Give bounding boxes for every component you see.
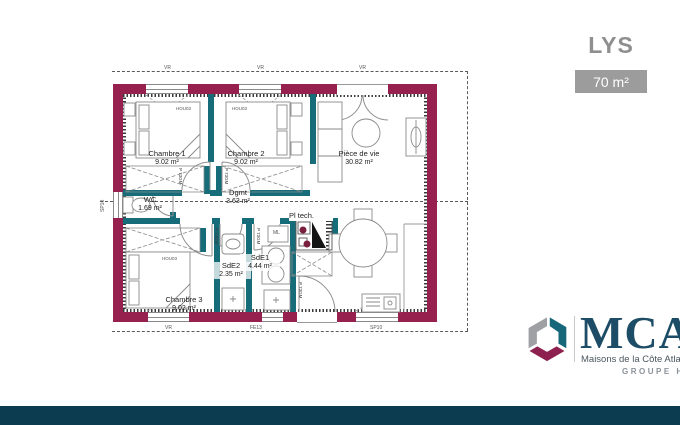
mca-cube-icon	[524, 314, 570, 365]
surface-value: 70 m²	[593, 74, 629, 90]
room-area: 9.02 m²	[148, 305, 220, 314]
room-name: WC	[128, 196, 172, 205]
room-label-piece-de-vie: Pièce de vie 30.82 m²	[320, 150, 398, 167]
page: Chambre 1 9.02 m² Chambre 2 9.02 m² Pièc…	[0, 0, 680, 425]
pendant-circle	[352, 119, 380, 147]
room-label-dgmt: Dgmt 3.63 m²	[216, 189, 260, 206]
room-name: Chambre 2	[210, 150, 282, 159]
floor-plan: Chambre 1 9.02 m² Chambre 2 9.02 m² Pièc…	[0, 0, 500, 425]
dim-mark-bottom-1: VR	[163, 326, 174, 331]
room-area: 30.82 m²	[320, 159, 398, 168]
door-jamb-label-3: P 73GM	[214, 228, 219, 244]
room-label-chambre1: Chambre 1 9.02 m²	[130, 150, 204, 167]
door-jamb-label-1: P 73GM	[178, 168, 183, 184]
footer-bar	[0, 406, 680, 425]
logo-group-label: GROUPE HEXAOM	[622, 367, 680, 376]
furniture-layer	[0, 0, 500, 425]
logo-subtitle: Maisons de la Côte Atlantique	[581, 354, 680, 365]
room-label-wc: WC 1.69 m²	[128, 196, 172, 213]
room-area: 2.35 m²	[211, 271, 251, 280]
room-name: Dgmt	[216, 189, 260, 198]
door-jamb-label-2: P 73GM	[224, 168, 229, 184]
room-area: 1.69 m²	[128, 205, 172, 214]
room-name: Chambre 3	[148, 296, 220, 305]
room-name: Pièce de vie	[320, 150, 398, 159]
room-label-chambre2: Chambre 2 9.02 m²	[210, 150, 282, 167]
room-area: 9.02 m²	[130, 159, 204, 168]
washing-machine-label: ML	[273, 231, 280, 236]
kitchen-counter	[404, 224, 427, 312]
room-area: 9.02 m²	[210, 159, 282, 168]
room-name: Chambre 1	[130, 150, 204, 159]
room-label-chambre3: Chambre 3 9.02 m²	[148, 296, 220, 313]
dining-table	[329, 209, 397, 277]
room-name: SdE1	[240, 254, 280, 263]
brand-logo: MCA Maisons de la Côte Atlantique GROUPE…	[524, 310, 680, 380]
dim-mark-left: SP10	[101, 200, 106, 212]
bed-ref-ch1: HOU03	[176, 106, 191, 111]
dim-mark-bottom-2: FE13	[248, 326, 264, 331]
door-jamb-label-4: P 73GM	[256, 228, 261, 244]
room-label-pltech: Pl tech.	[289, 212, 333, 221]
dim-mark-bottom-3: SP10	[368, 326, 384, 331]
kitchen-sink	[362, 294, 400, 312]
sofa	[318, 102, 342, 182]
dim-mark-top-1: VR	[162, 66, 173, 71]
door-jamb-label-5: P 73GM	[298, 282, 303, 298]
dim-mark-top-3: VR	[357, 66, 368, 71]
logo-acronym: MCA	[580, 312, 680, 354]
room-name: Pl tech.	[289, 212, 333, 221]
room-area: 4.44 m²	[240, 263, 280, 272]
room-label-sde1: SdE1 4.44 m²	[240, 254, 280, 271]
pltech-equipment	[296, 218, 332, 250]
model-name: LYS	[575, 32, 647, 59]
logo-divider	[574, 316, 575, 362]
bed-ref-ch3: HOU03	[162, 256, 177, 261]
surface-badge: 70 m²	[575, 70, 647, 93]
bed-ref-ch2: HOU03	[232, 106, 247, 111]
room-area: 3.63 m²	[216, 198, 260, 207]
dim-mark-top-2: VR	[255, 66, 266, 71]
radiator	[406, 118, 426, 156]
